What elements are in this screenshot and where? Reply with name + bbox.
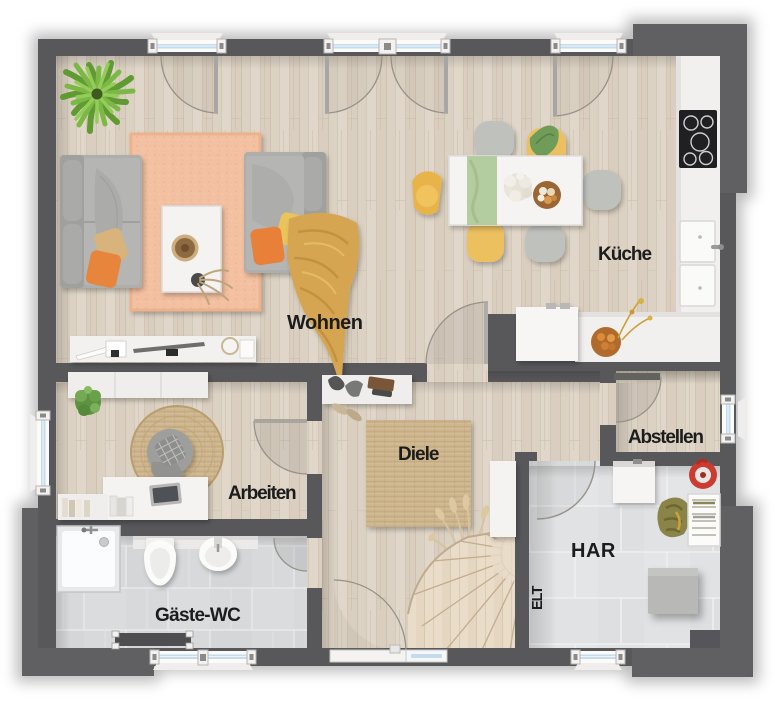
svg-text:ELT: ELT	[530, 586, 546, 610]
svg-text:Wohnen: Wohnen	[287, 312, 363, 334]
svg-text:Arbeiten: Arbeiten	[228, 483, 296, 504]
svg-text:Gäste-WC: Gäste-WC	[155, 605, 241, 626]
svg-text:Diele: Diele	[398, 444, 439, 465]
svg-text:Abstellen: Abstellen	[628, 427, 703, 448]
svg-text:Küche: Küche	[598, 244, 652, 265]
svg-text:HAR: HAR	[571, 540, 616, 562]
